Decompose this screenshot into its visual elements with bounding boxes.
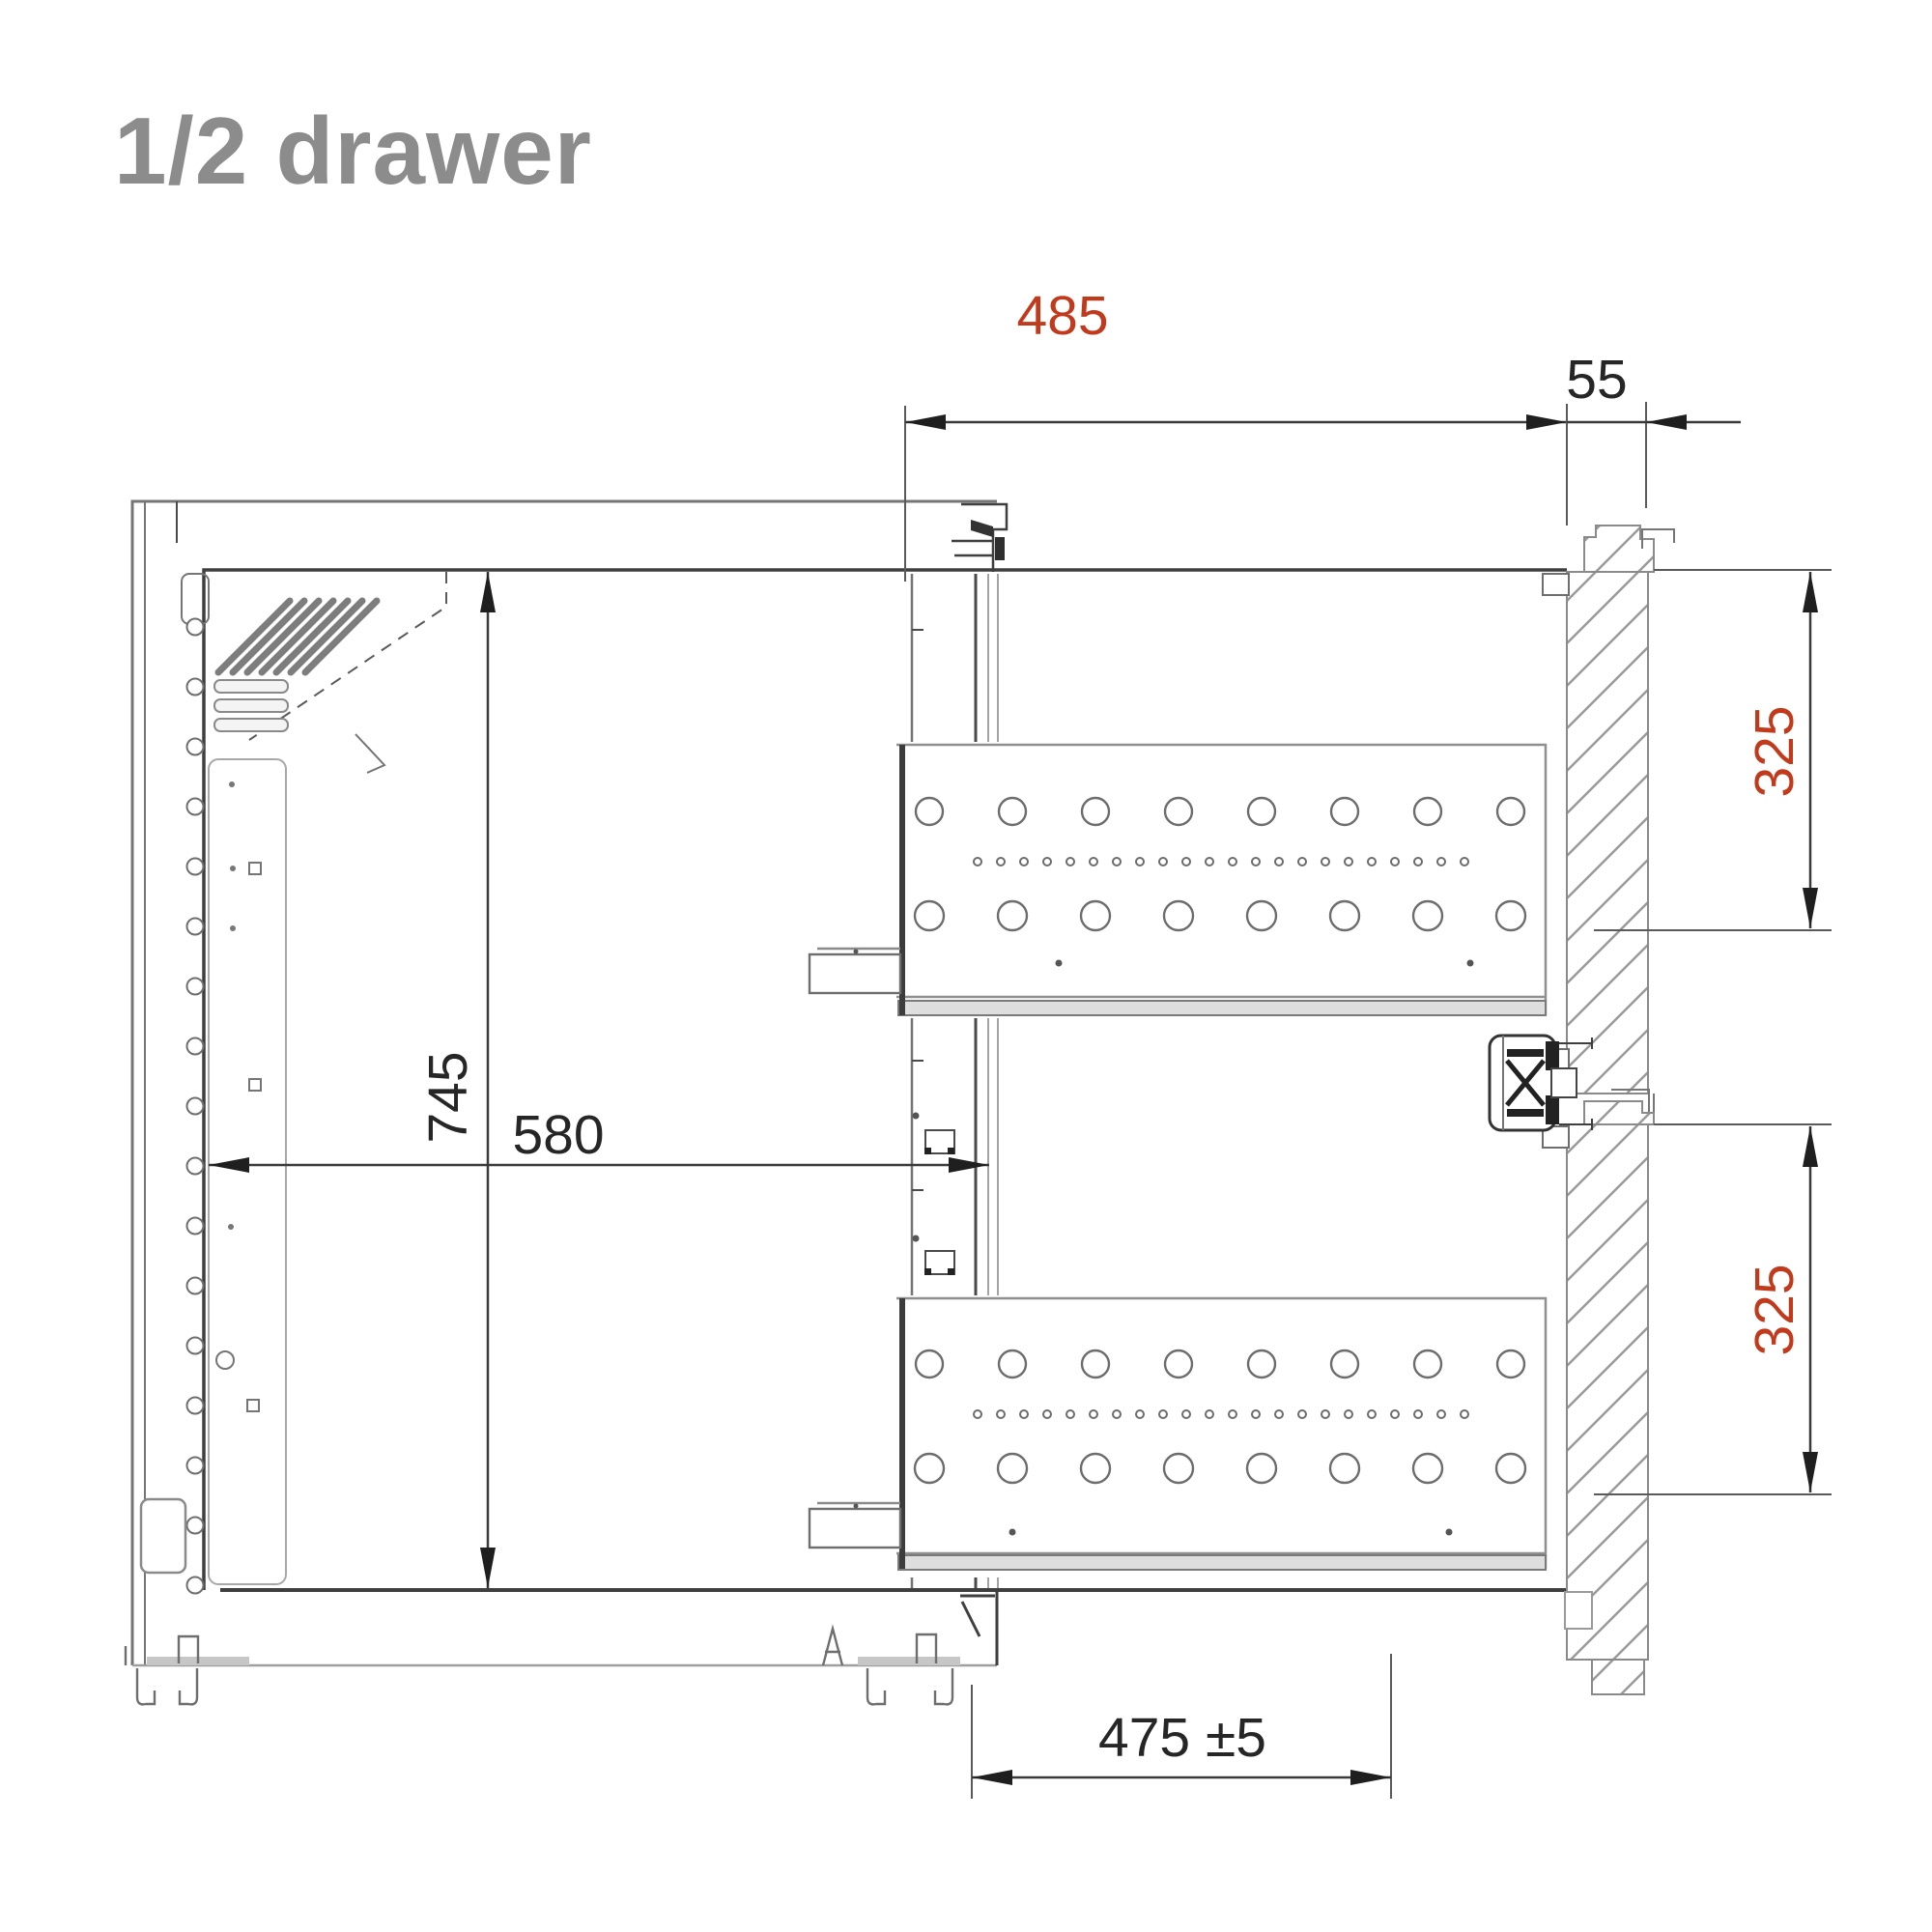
back-panel-dot <box>229 781 235 787</box>
drawer-rivet <box>1467 960 1474 967</box>
foot-bracket <box>126 1636 198 1704</box>
dim-325-top-label: 325 <box>1744 705 1805 797</box>
slide-arm-dot <box>854 1504 859 1509</box>
drawer-bottom-rail <box>898 1555 1546 1570</box>
dim-745-label: 745 <box>417 1051 479 1143</box>
extension-line <box>1567 402 1646 526</box>
back-wall-screw-holes <box>187 619 204 1594</box>
vent-horizontal-slat <box>214 680 288 693</box>
top-drawer-front-panel <box>1543 526 1674 1122</box>
top-drawer-slide-arm <box>810 949 900 993</box>
front-panel-notch <box>1565 1592 1592 1629</box>
dim-325-bottom-label: 325 <box>1744 1264 1805 1355</box>
front-panel-bottom-tab <box>1592 1660 1644 1694</box>
top-slide-bracket <box>952 504 1007 572</box>
technical-drawing: 485 55 325 325 <box>0 0 1932 1932</box>
dim-55-label: 55 <box>1566 349 1627 411</box>
dim-580: 580 <box>209 1104 989 1173</box>
slide-arm-body <box>810 1509 900 1548</box>
screw-hole <box>187 799 204 815</box>
latch-pin <box>1546 1095 1559 1124</box>
back-panel-dot <box>230 866 236 871</box>
screw-hole <box>187 739 204 755</box>
drawer-rivet <box>1056 960 1063 967</box>
back-panel-square-cutouts <box>247 863 261 1411</box>
back-panel-dot <box>228 1224 234 1230</box>
dimension-arrow-up-icon <box>1803 572 1818 612</box>
screw-hole <box>187 1278 204 1294</box>
vent-horizontal-slat <box>214 699 288 712</box>
drawer-bottom-rail <box>898 1001 1546 1015</box>
screw-hole <box>187 1098 204 1115</box>
rail-dot <box>913 1236 920 1242</box>
screw-hole <box>187 1038 204 1055</box>
drawer-rivet <box>1009 1529 1016 1536</box>
foot-plate <box>858 1657 960 1665</box>
drawing-canvas: 1/2 drawer <box>0 0 1932 1932</box>
screw-hole <box>187 859 204 875</box>
bottom-drawer-front-panel <box>1543 1101 1654 1694</box>
dimension-arrow-down-icon <box>1803 888 1818 928</box>
screw-hole <box>187 619 204 636</box>
back-panel-dot <box>230 925 236 931</box>
screw-hole <box>187 1398 204 1414</box>
dimension-arrow-right-icon <box>1350 1770 1391 1785</box>
latch-pin <box>1546 1041 1559 1070</box>
screw-hole <box>187 1518 204 1534</box>
dim-475-label: 475 ±5 <box>1098 1707 1266 1769</box>
latch-tongue <box>1551 1068 1577 1097</box>
dim-485-label: 485 <box>1016 285 1108 347</box>
back-panel-hole <box>216 1351 234 1369</box>
screw-hole <box>187 1158 204 1175</box>
dimension-arrow-left-icon <box>972 1770 1012 1785</box>
dimension-arrow-left-icon <box>209 1157 249 1173</box>
dimension-arrow-down-icon <box>1803 1452 1818 1492</box>
front-panel-clip <box>1543 574 1569 595</box>
wall-bracket-lower <box>141 1499 185 1573</box>
dimension-arrow-up-icon <box>480 572 496 612</box>
latch-bar <box>1507 1109 1544 1117</box>
cabinet-front-bottom-frame <box>960 1590 997 1665</box>
dimension-arrow-left-icon <box>905 414 946 430</box>
screw-hole <box>187 979 204 995</box>
slide-arm-dot <box>854 950 859 954</box>
bracket-block <box>995 537 1005 560</box>
bottom-drawer-slide-arm <box>810 1503 900 1548</box>
front-panel-top-step <box>1584 526 1654 572</box>
latch-bar <box>1507 1049 1544 1057</box>
drawer-bg <box>896 1295 1549 1577</box>
dim-475: 475 ±5 <box>972 1654 1391 1799</box>
rail-dot <box>913 1113 920 1120</box>
dim-745: 745 <box>417 572 496 1588</box>
dimension-arrow-down-icon <box>480 1548 496 1588</box>
dimension-arrow-up-icon <box>1803 1126 1818 1167</box>
bracket-wedge <box>971 520 993 537</box>
drawer-rivet <box>1446 1529 1453 1536</box>
front-panel-section <box>1567 572 1648 1094</box>
dimension-arrow-left-icon <box>1646 414 1687 430</box>
slide-arm-body <box>810 954 900 993</box>
dimension-arrow-right-icon <box>949 1157 989 1173</box>
screw-hole <box>187 679 204 696</box>
top-drawer-body <box>810 742 1549 1018</box>
dim-580-label: 580 <box>512 1104 604 1166</box>
front-panel-section <box>1567 1124 1648 1660</box>
dimension-arrow-right-icon <box>1526 414 1567 430</box>
bottom-drawer-body <box>810 1295 1549 1577</box>
dim-485: 485 <box>905 285 1567 582</box>
screw-hole <box>187 919 204 935</box>
vent-horizontal-slat <box>214 719 288 731</box>
screw-hole <box>187 1577 204 1594</box>
screw-hole <box>187 1338 204 1354</box>
ventilation-grille <box>214 572 446 773</box>
cabinet-outer-wall <box>132 501 997 1665</box>
screw-hole <box>187 1458 204 1474</box>
vent-fold-line <box>355 734 384 773</box>
dim-55: 55 <box>1566 349 1741 526</box>
screw-hole <box>187 1218 204 1235</box>
drawer-bg <box>896 742 1549 1018</box>
front-panel-top-step <box>1584 1101 1654 1124</box>
